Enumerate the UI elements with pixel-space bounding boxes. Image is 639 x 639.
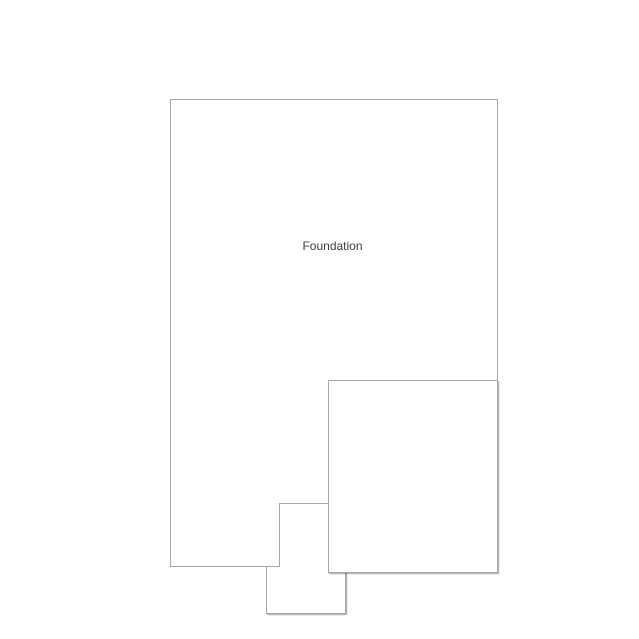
foundation-label: Foundation [302,239,362,253]
floorplan-svg: Foundation [0,0,639,639]
diagram-canvas: Foundation [0,0,639,639]
extension-rect [329,381,498,573]
